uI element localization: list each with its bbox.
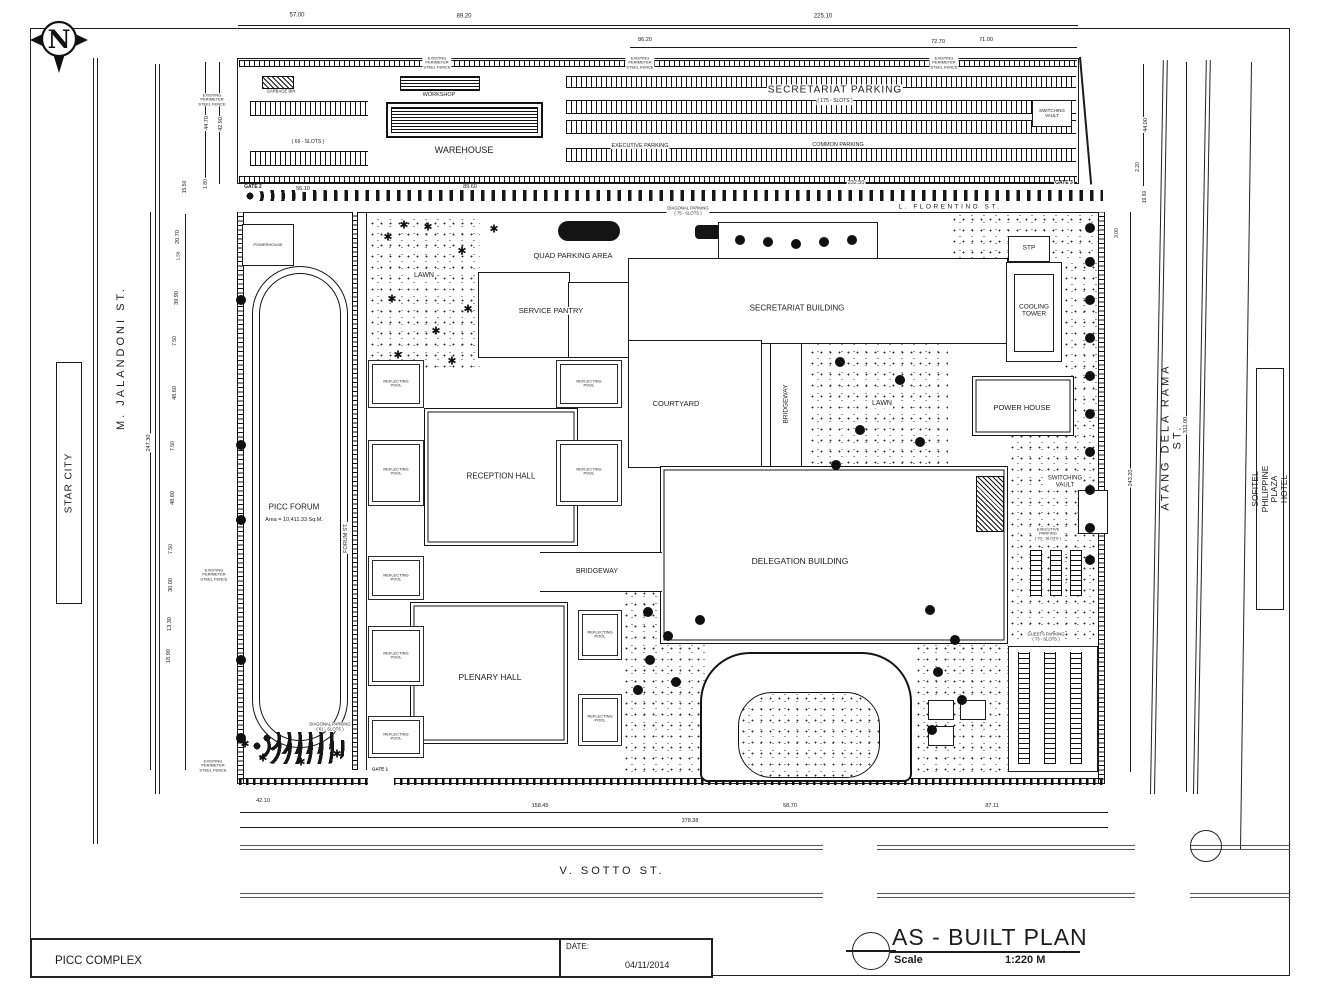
power-house-label: POWER HOUSE [993, 404, 1050, 412]
dim-750b: 7.50 [171, 440, 177, 452]
dim-4210: 42.10 [255, 798, 271, 804]
secretariat-building-label: SECRETARIAT BUILDING [749, 305, 846, 314]
warehouse-label: WAREHOUSE [434, 145, 495, 155]
dim-4470: 44.70 [204, 115, 210, 131]
sotto-street-label: V. SOTTO ST. [559, 865, 664, 877]
tree-icon [895, 375, 905, 385]
tree-icon [847, 235, 857, 245]
reflecting-pool-6: REFLECTING POOL [382, 652, 409, 661]
tree-icon [950, 635, 960, 645]
tree-icon [1085, 555, 1095, 565]
courtyard-label: COURTYARD [653, 400, 700, 408]
parking-row [250, 101, 368, 116]
tree-icon: ✱ [447, 357, 456, 368]
tree-icon [831, 460, 841, 470]
delegation-building-label: DELEGATION BUILDING [752, 557, 849, 567]
parking-column [1070, 550, 1082, 596]
tree-icon [1085, 447, 1095, 457]
slots-66-label: ( 66 - SLOTS ) [291, 140, 326, 146]
manhole-circle [1190, 830, 1222, 862]
entrance-island [738, 692, 880, 778]
garbage-bin-label: GARBAGE BIN [266, 90, 297, 95]
dim-750a: 7.50 [173, 335, 179, 347]
tree-icon [1085, 485, 1095, 495]
dim-8711: 87.11 [984, 803, 999, 809]
reflecting-pool-3: REFLECTING POOL [382, 468, 409, 477]
tree-icon [1085, 523, 1095, 533]
forum-street-label: FORUM ST. [343, 522, 349, 554]
service-pantry-building [568, 282, 632, 358]
executive-parking-20-label: EXECUTIVE PARKING ( 20 - SLOTS ) [1034, 527, 1062, 540]
sotto-north-curb [240, 845, 823, 850]
hedge-row [245, 190, 1103, 201]
tree-icon [735, 235, 745, 245]
dim-15845: 158.45 [531, 803, 550, 809]
project-name: PICC COMPLEX [55, 955, 142, 967]
tree-icon: ✱ [258, 754, 267, 765]
star-city-label: STAR CITY [63, 453, 74, 513]
date-value: 04/11/2014 [625, 960, 669, 970]
strip-bottom-fence [239, 176, 1077, 183]
fence-note-4: EXISTING PERIMETER STEEL FENCE [929, 56, 958, 69]
stp-label: STP [1023, 244, 1036, 251]
tree-icon: ✱ [393, 351, 402, 362]
lawn-area [808, 336, 948, 482]
tree-icon [671, 677, 681, 687]
dim-top-22510: 225.10 [814, 14, 832, 21]
bridgeway-v-label: BRIDGEWAY [782, 383, 789, 424]
reflecting-pool-1: REFLECTING POOL [382, 380, 409, 389]
dim-line [240, 812, 1108, 813]
dim-150: 1.50 [175, 251, 180, 262]
forum-street-fence [352, 212, 358, 770]
tree-icon [236, 655, 246, 665]
tree-icon [925, 605, 935, 615]
reflecting-pool-9: REFLECTING POOL [586, 715, 613, 724]
dim-top-7100: 71.00 [979, 37, 993, 43]
reflecting-pool-5: REFLECTING POOL [382, 574, 409, 583]
tree-icon [1085, 223, 1095, 233]
lawn-label-2: LAWN [871, 400, 893, 408]
dim-5610: 56.10 [295, 186, 311, 192]
quad-parking-label: QUAD PARKING AREA [532, 252, 613, 260]
plenary-hall-label: PLENARY HALL [459, 673, 522, 683]
reflecting-pool-4: REFLECTING POOL [575, 468, 602, 477]
dim-1890: 18.90 [166, 648, 172, 664]
bridgeway-h-label: BRIDGEWAY [575, 568, 619, 576]
warehouse-roof [391, 107, 538, 133]
picc-forum-label: PICC FORUM [268, 504, 321, 513]
florentino-street-label: L. FLORENTINO ST. [898, 203, 1003, 210]
tree-icon [663, 631, 673, 641]
tree-icon [236, 295, 246, 305]
jalandoni-street-label: M. JALANDONI ST. [115, 286, 127, 430]
executive-parking-label: EXECUTIVE PARKING [610, 143, 669, 149]
diagonal-parking-61-label: DIAGONAL PARKING ( 61 - SLOTS ) [308, 722, 351, 731]
sotto-south-curb [240, 893, 823, 898]
dim-31100: 311.00 [1183, 416, 1189, 434]
tree-icon [835, 357, 845, 367]
tree-icon [1085, 257, 1095, 267]
lawn-label-1: LAWN [413, 272, 435, 280]
tree-icon: ✱ [383, 233, 392, 244]
parking-column [1030, 550, 1042, 596]
common-parking-label: COMMON PARKING [811, 142, 865, 148]
powerhouse-label: POWERHOUSE [252, 243, 283, 247]
dim-23250: 232.50 [847, 180, 866, 186]
parking-column [1050, 550, 1062, 596]
switching-vault-label: SWITCHING VAULT [1047, 475, 1083, 488]
tree-icon [633, 685, 643, 695]
diagonal-parking-75-label: DIAGONAL PARKING ( 75 - SLOTS ) [666, 206, 709, 215]
cooling-tower-label: COOLING TOWER [1018, 304, 1050, 319]
tree-icon: ✱ [457, 247, 466, 258]
dim-top-57: 57.00 [289, 13, 304, 20]
picc-forum-area: Area = 10,411.33 Sq.M. [264, 517, 324, 523]
tree-icon: ✱ [332, 750, 341, 761]
parking-column [1018, 652, 1030, 764]
tree-icon: ✱ [489, 225, 498, 236]
secretariat-parking-label: SECRETARIAT PARKING [767, 84, 903, 95]
reflecting-pool-8: REFLECTING POOL [586, 631, 613, 640]
tree-icon [763, 237, 773, 247]
dim-4860a: 48.60 [172, 385, 178, 401]
dim-1960: 19.60 [1143, 190, 1149, 205]
tree-icon: ✱ [296, 758, 305, 769]
dim-top-8620: 86.20 [638, 37, 652, 43]
dim-300: 3.00 [1115, 227, 1121, 239]
plan-title-underline [890, 951, 1080, 953]
reflecting-pool-2: REFLECTING POOL [575, 380, 602, 389]
scale-value: 1:220 M [1005, 954, 1045, 966]
dim-3990: 39.90 [174, 290, 180, 306]
gate-3-label: GATE 3 [1054, 181, 1074, 187]
fence-note-3: EXISTING PERIMETER STEEL FENCE [625, 56, 654, 69]
dim-4400: 44.00 [1143, 117, 1149, 133]
tree-icon [1085, 333, 1095, 343]
tree-icon [927, 725, 937, 735]
tree-icon [933, 667, 943, 677]
dim-top-7270: 72.70 [931, 39, 945, 45]
tree-icon [645, 655, 655, 665]
dim-3000: 30.00 [168, 577, 174, 593]
dim-220: 2.20 [1136, 161, 1142, 173]
dim-24730: 247.30 [146, 434, 152, 453]
garbage-bin [262, 76, 294, 89]
atang-street-label: ATANG DELA RAMA ST. [1160, 362, 1185, 512]
gate-1-label: GATE 1 [371, 766, 389, 771]
scale-label: Scale [894, 954, 923, 966]
dim-4290: 42.90 [218, 116, 224, 132]
delegation-annex [976, 476, 1004, 532]
dim-37838: 378.38 [681, 818, 700, 824]
dim-2070: 20.70 [175, 229, 181, 245]
dim-1330: 13.30 [167, 616, 173, 632]
dim-line [185, 214, 186, 770]
date-label: DATE: [566, 942, 589, 951]
tree-icon [695, 615, 705, 625]
dim-4860b: 48.60 [170, 490, 176, 506]
fence-note-1: EXISTING PERIMETER STEEL FENCE [197, 93, 226, 106]
parked-bus [558, 221, 620, 241]
dim-24320: 243.20 [1128, 469, 1134, 488]
parking-row [250, 151, 368, 166]
gate-1-opening [368, 776, 394, 786]
dim-line [1130, 212, 1131, 772]
plan-title: AS - BUILT PLAN [892, 924, 1088, 951]
north-letter: N [48, 25, 71, 54]
fence-note-5: EXISTING PERIMETER STEEL FENCE [199, 568, 228, 581]
tree-icon [791, 239, 801, 249]
dim-line [150, 212, 151, 770]
plan-title-circle-line [846, 950, 896, 952]
site-plan-sheet: N [0, 0, 1322, 988]
tree-icon [236, 440, 246, 450]
reception-hall-label: RECEPTION HALL [467, 473, 536, 482]
dim-1550: 15.50 [183, 180, 189, 195]
dim-5870: 58.70 [782, 803, 798, 809]
dim-line [630, 47, 1077, 48]
workshop-building [400, 76, 480, 91]
sofitel-label: SOFITEL PHILIPPINE PLAZA HOTEL [1251, 463, 1289, 515]
dim-750c: 7.50 [169, 543, 175, 555]
parking-column [1070, 652, 1082, 764]
secretariat-building [628, 258, 1008, 344]
service-structure [928, 700, 954, 720]
dim-line [240, 827, 1108, 828]
service-pantry-label: SERVICE PANTRY [518, 307, 585, 315]
jalandoni-east-curb [155, 64, 160, 794]
tree-icon: ✱ [399, 221, 408, 232]
tree-icon [855, 425, 865, 435]
tree-icon: ✱ [431, 327, 440, 338]
tree-icon [957, 695, 967, 705]
switching-vault-top-label: SWITCHING VAULT [1038, 108, 1066, 118]
sotto-north-curb [877, 845, 1135, 850]
tree-icon [1085, 371, 1095, 381]
tree-icon: ✱ [387, 295, 396, 306]
dim-top-8920: 89.20 [456, 14, 471, 21]
north-arrow-icon: N [26, 10, 92, 76]
tree-icon [236, 515, 246, 525]
forum-street-line [366, 212, 367, 770]
tree-icon: ✱ [240, 740, 249, 751]
tree-icon [915, 437, 925, 447]
tree-icon: ✱ [463, 305, 472, 316]
fence-note-6: EXISTING PERIMETER STEEL FENCE [198, 759, 227, 772]
dim-8960: 89.60 [462, 184, 478, 190]
dim-line [238, 25, 1078, 26]
tree-icon [1085, 409, 1095, 419]
dim-180: 1.80 [204, 178, 210, 190]
parking-column [1044, 652, 1056, 764]
tree-icon [643, 607, 653, 617]
sotto-south-curb [877, 893, 1135, 898]
sotto-south-curb [1190, 893, 1290, 898]
parking-row [566, 148, 1076, 162]
guests-parking-label: GUESTS PARKING ( 73 - SLOTS ) [1027, 632, 1066, 641]
gate-2-label: GATE 2 [243, 185, 263, 191]
tree-icon [819, 237, 829, 247]
secretariat-parking-slots: ( 175 - SLOTS ) [816, 99, 853, 105]
reflecting-pool-7: REFLECTING POOL [382, 733, 409, 742]
parking-row [566, 120, 1076, 134]
jalandoni-west-curb [93, 58, 98, 844]
delegation-building [660, 466, 1008, 644]
workshop-label: WORKSHOP [422, 92, 457, 98]
fence-note-2: EXISTING PERIMETER STEEL FENCE [422, 56, 451, 69]
tree-icon [1085, 295, 1095, 305]
tree-icon: ✱ [423, 223, 432, 234]
